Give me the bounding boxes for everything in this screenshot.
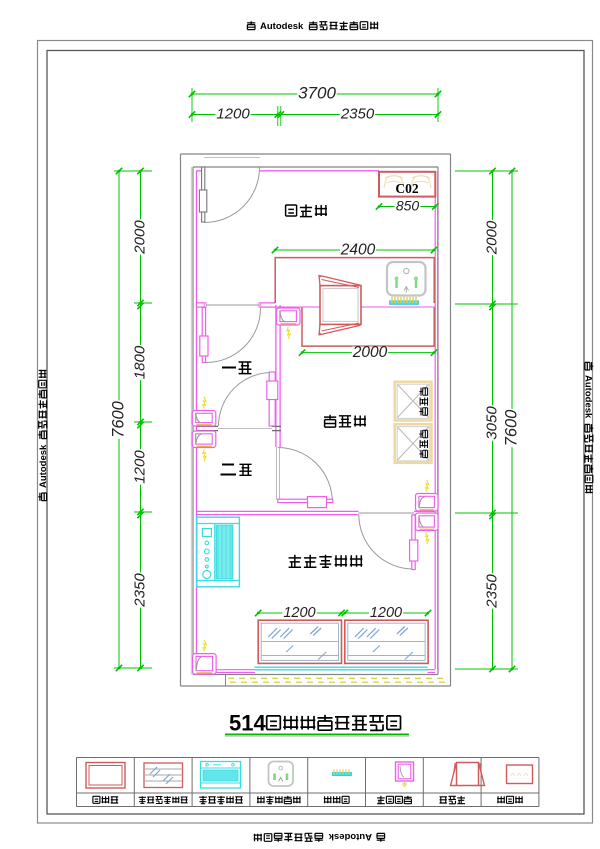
svg-text:1800: 1800 (132, 345, 149, 379)
svg-text:2400: 2400 (340, 241, 376, 258)
svg-text:2350: 2350 (340, 106, 375, 123)
svg-text:2000: 2000 (132, 220, 149, 255)
svg-text:Autodesk: Autodesk (38, 444, 49, 488)
svg-text:1200: 1200 (370, 605, 402, 621)
svg-text:7600: 7600 (110, 400, 128, 438)
svg-text:850: 850 (396, 197, 420, 213)
svg-text:514: 514 (229, 711, 266, 736)
svg-text:1200: 1200 (132, 450, 149, 484)
svg-text:2350: 2350 (484, 574, 501, 609)
svg-text:Autodesk: Autodesk (328, 831, 372, 842)
svg-text:3050: 3050 (484, 406, 501, 440)
svg-text:2000: 2000 (484, 220, 501, 255)
svg-text:1200: 1200 (216, 106, 250, 123)
svg-text:1200: 1200 (283, 605, 315, 621)
svg-text:2350: 2350 (132, 573, 149, 608)
svg-text:Autodesk: Autodesk (260, 21, 304, 32)
svg-text:2000: 2000 (352, 344, 388, 361)
svg-text:7600: 7600 (503, 409, 521, 447)
svg-text:C02: C02 (395, 181, 418, 196)
svg-text:3700: 3700 (298, 83, 336, 102)
svg-text:Autodesk: Autodesk (583, 375, 594, 419)
